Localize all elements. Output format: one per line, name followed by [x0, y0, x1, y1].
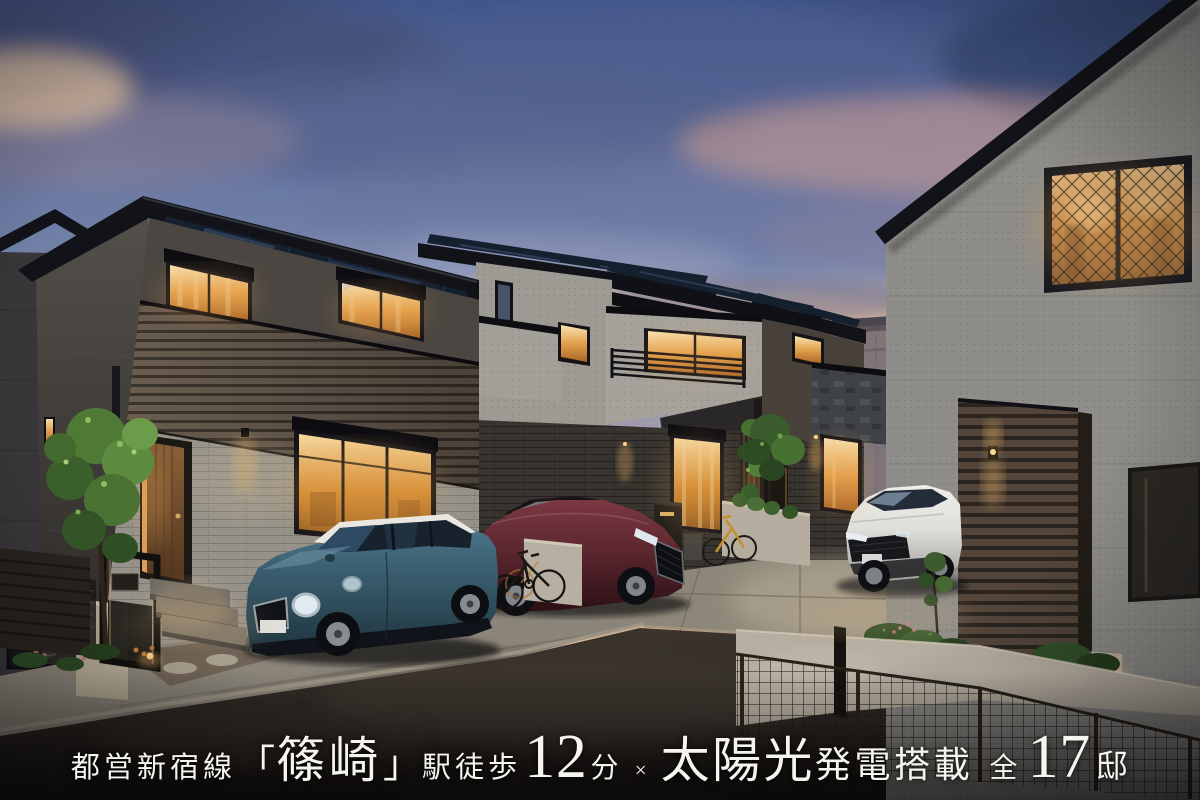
headline-segment: ×: [635, 760, 647, 781]
headline-segment: 12: [524, 726, 587, 788]
headline: 都営新宿線「篠崎」駅徒歩12分×太陽光発電搭載全17邸: [0, 726, 1200, 788]
headline-segment: 」: [383, 746, 421, 784]
scene-illustration: [0, 0, 1200, 800]
headline-segment: 分: [590, 755, 620, 783]
headline-segment: 駅徒歩: [422, 754, 521, 783]
headline-segment: 17: [1028, 726, 1091, 788]
advertisement-image: 都営新宿線「篠崎」駅徒歩12分×太陽光発電搭載全17邸: [0, 0, 1200, 800]
headline-segment: 邸: [1096, 750, 1129, 782]
headline-segment: 全: [989, 755, 1019, 783]
headline-segment: 都営新宿線: [71, 754, 236, 783]
headline-segment: 発電搭載: [815, 747, 973, 783]
headline-segment: 篠崎: [276, 736, 382, 785]
headline-segment: 太陽光: [661, 736, 815, 785]
vignette: [0, 0, 1200, 800]
headline-segment: 「: [237, 746, 275, 784]
